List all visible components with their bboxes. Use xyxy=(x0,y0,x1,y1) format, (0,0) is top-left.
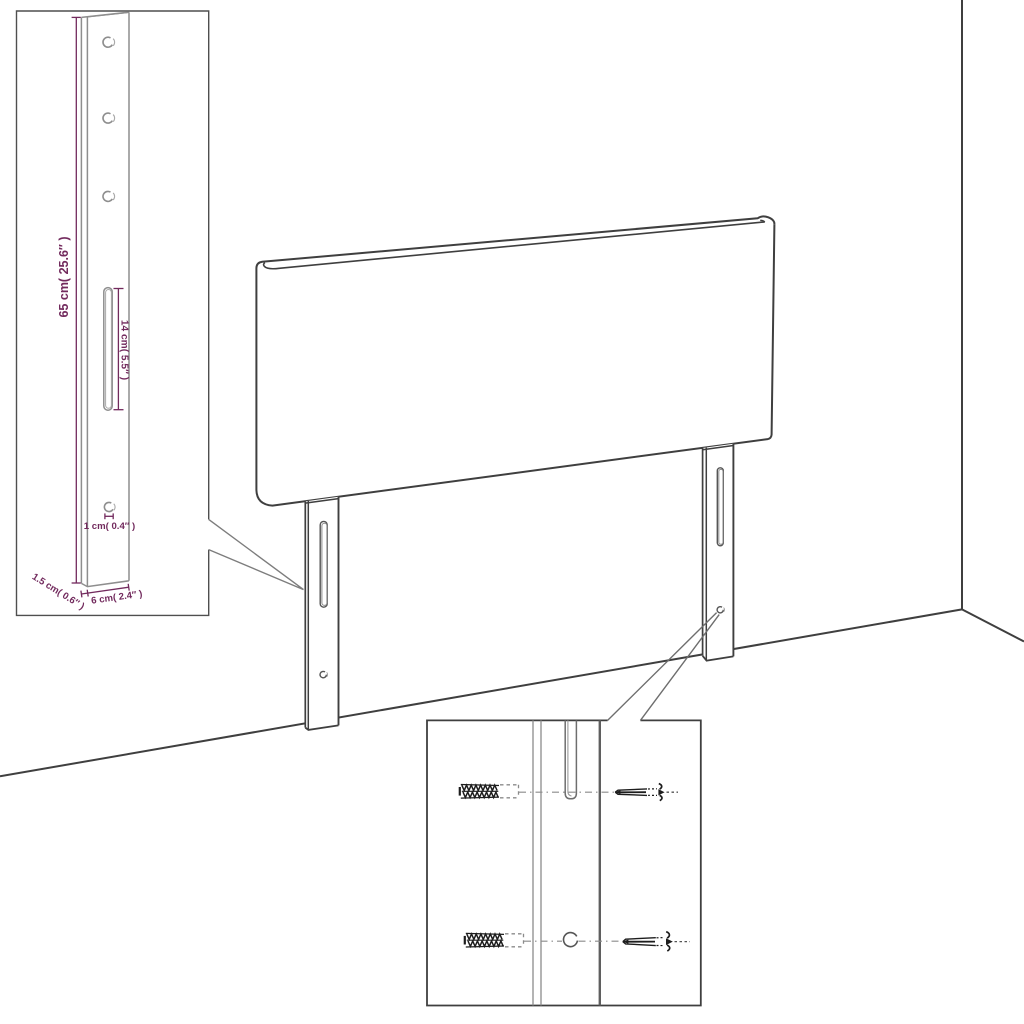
svg-text:14 cm( 5.5″ ): 14 cm( 5.5″ ) xyxy=(118,320,129,380)
svg-text:1 cm( 0.4″ ): 1 cm( 0.4″ ) xyxy=(84,521,136,532)
svg-text:65 cm( 25.6″ ): 65 cm( 25.6″ ) xyxy=(57,236,71,317)
